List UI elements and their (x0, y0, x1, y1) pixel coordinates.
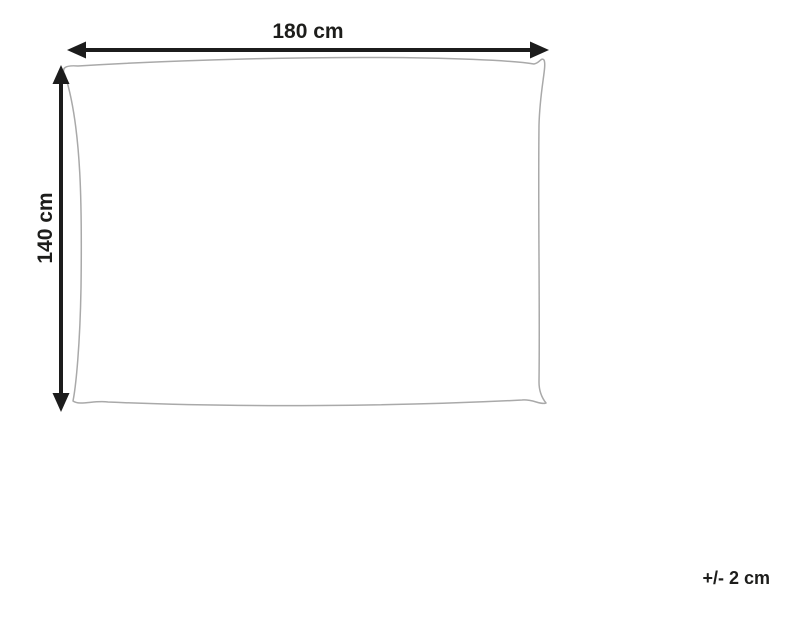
width-arrow-left-head-icon (67, 42, 86, 59)
diagram-drawing (0, 0, 804, 619)
height-dimension-label: 140 cm (34, 192, 58, 263)
height-arrow-bottom-head-icon (53, 393, 70, 412)
dimension-diagram: 180 cm 140 cm +/- 2 cm (0, 0, 804, 619)
height-arrow-shaft (59, 81, 63, 396)
tolerance-label: +/- 2 cm (702, 567, 770, 589)
width-arrow-shaft (82, 48, 534, 52)
width-dimension-label: 180 cm (70, 20, 546, 44)
blanket-outline (64, 57, 546, 405)
width-dimension-arrow (67, 42, 549, 59)
width-arrow-right-head-icon (530, 42, 549, 59)
